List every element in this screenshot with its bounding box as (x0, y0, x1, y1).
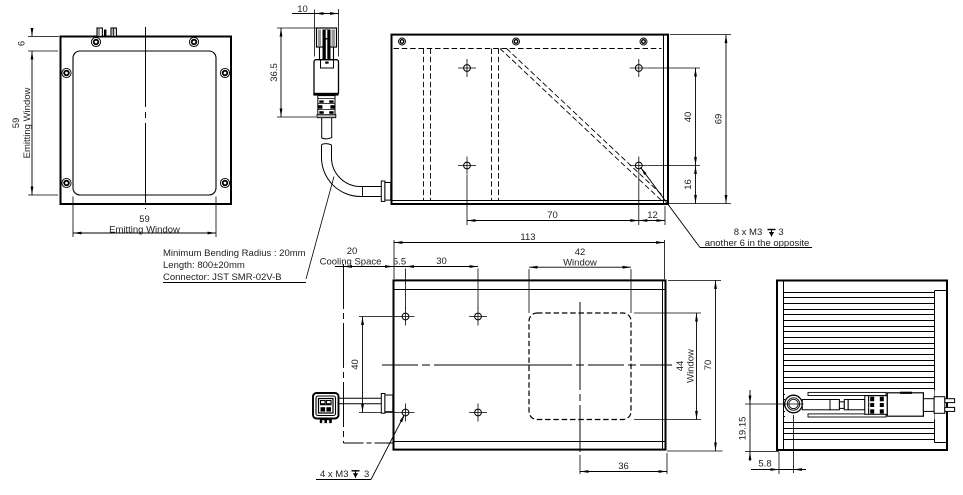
svg-text:59: 59 (11, 118, 22, 129)
svg-text:30: 30 (436, 256, 447, 267)
svg-text:another 6 in the opposite: another 6 in the opposite (705, 238, 810, 249)
svg-text:Emitting Window: Emitting Window (22, 87, 33, 158)
svg-text:20: 20 (347, 246, 358, 257)
svg-text:10: 10 (297, 4, 308, 15)
svg-text:44: 44 (675, 361, 686, 372)
svg-text:3: 3 (364, 469, 369, 480)
svg-text:16: 16 (683, 179, 694, 190)
svg-text:36.5: 36.5 (269, 63, 280, 82)
svg-text:Length: 800±20mm: Length: 800±20mm (163, 260, 245, 271)
svg-text:12: 12 (647, 210, 658, 221)
svg-text:6: 6 (17, 41, 28, 46)
svg-text:5.5: 5.5 (393, 257, 406, 268)
svg-text:40: 40 (350, 359, 361, 370)
svg-text:5.8: 5.8 (758, 459, 771, 470)
svg-text:113: 113 (520, 232, 535, 243)
svg-text:59: 59 (139, 214, 150, 225)
svg-text:70: 70 (703, 360, 714, 371)
svg-text:3: 3 (778, 227, 783, 238)
svg-text:40: 40 (683, 112, 694, 123)
svg-text:Cooling Space: Cooling Space (320, 257, 382, 268)
svg-text:4 x M3: 4 x M3 (320, 469, 349, 480)
svg-text:Window: Window (563, 257, 597, 268)
svg-text:Minimum Bending Radius : 20mm: Minimum Bending Radius : 20mm (163, 248, 306, 259)
svg-text:36: 36 (618, 461, 629, 472)
svg-text:70: 70 (547, 210, 558, 221)
svg-text:Window: Window (686, 349, 697, 383)
svg-text:69: 69 (714, 114, 725, 125)
svg-text:19.15: 19.15 (738, 417, 749, 441)
svg-text:Connector: JST SMR-02V-B: Connector: JST SMR-02V-B (163, 272, 282, 283)
svg-text:Emitting Window: Emitting Window (109, 225, 180, 236)
svg-text:8 x M3: 8 x M3 (734, 227, 763, 238)
